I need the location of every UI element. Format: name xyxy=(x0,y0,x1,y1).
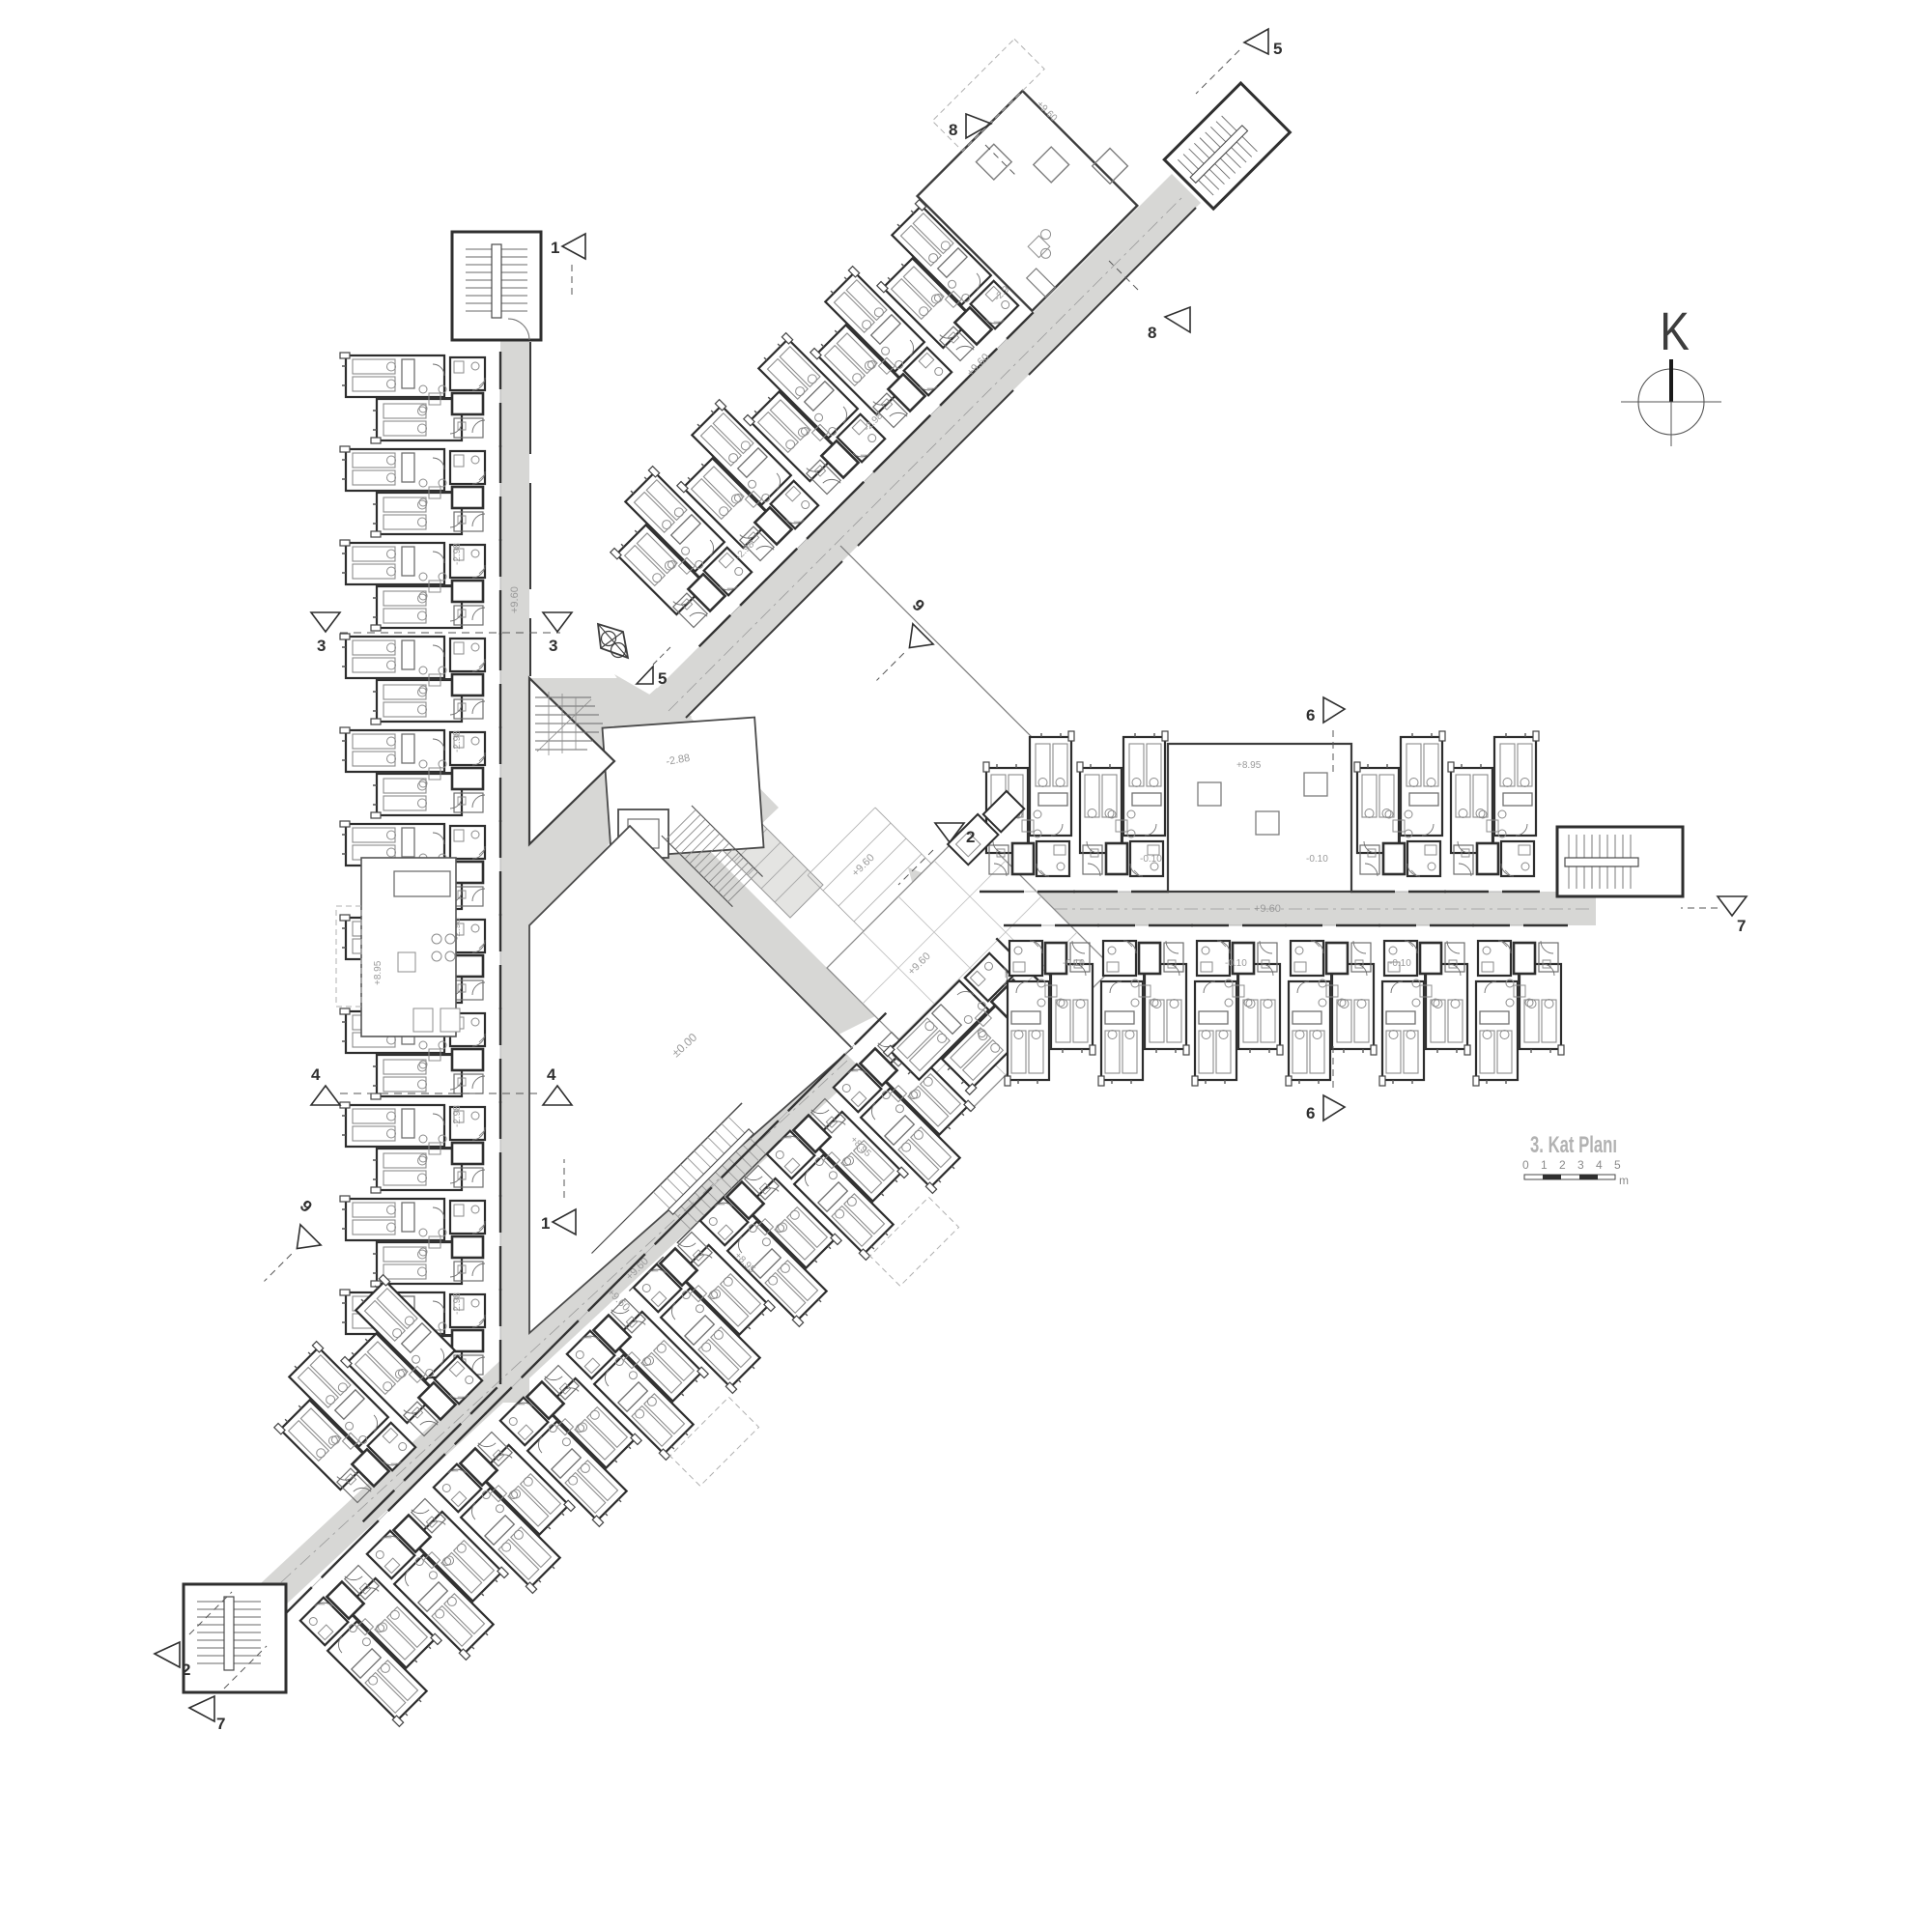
svg-text:2: 2 xyxy=(182,1660,190,1679)
svg-text:-2.98: -2.98 xyxy=(452,1105,463,1127)
svg-text:-0.10: -0.10 xyxy=(1306,854,1328,865)
svg-text:3: 3 xyxy=(549,637,557,655)
svg-text:-0.10: -0.10 xyxy=(1140,854,1162,865)
svg-text:1: 1 xyxy=(541,1214,550,1233)
svg-text:6: 6 xyxy=(1306,1104,1315,1122)
svg-text:1: 1 xyxy=(1541,1158,1548,1172)
svg-text:3. Kat Planı: 3. Kat Planı xyxy=(1530,1132,1617,1158)
svg-text:7: 7 xyxy=(1737,917,1746,935)
svg-text:+8.95: +8.95 xyxy=(373,960,384,985)
svg-text:3: 3 xyxy=(1577,1158,1584,1172)
svg-text:-2.98: -2.98 xyxy=(452,543,463,565)
svg-text:-0.10: -0.10 xyxy=(1063,958,1085,969)
svg-text:3: 3 xyxy=(317,637,326,655)
svg-text:-0.10: -0.10 xyxy=(1225,958,1247,969)
svg-text:+9.60: +9.60 xyxy=(509,586,521,613)
svg-text:+9.60: +9.60 xyxy=(1254,903,1281,915)
svg-text:1: 1 xyxy=(551,239,559,257)
svg-text:+8.95: +8.95 xyxy=(1236,760,1262,771)
svg-text:0: 0 xyxy=(1522,1158,1529,1172)
svg-text:8: 8 xyxy=(949,121,957,139)
svg-text:5: 5 xyxy=(1614,1158,1621,1172)
svg-text:m: m xyxy=(1619,1174,1629,1187)
svg-text:8: 8 xyxy=(1148,324,1156,342)
svg-text:-2.98: -2.98 xyxy=(452,730,463,752)
svg-text:6: 6 xyxy=(1306,706,1315,724)
svg-text:9: 9 xyxy=(297,1197,316,1216)
svg-text:+9.60: +9.60 xyxy=(850,852,877,879)
svg-text:-0.10: -0.10 xyxy=(1389,958,1411,969)
svg-text:4: 4 xyxy=(1596,1158,1603,1172)
svg-text:5: 5 xyxy=(1273,40,1282,58)
svg-text:2: 2 xyxy=(966,828,975,846)
svg-text:K: K xyxy=(1660,301,1690,361)
svg-text:4: 4 xyxy=(547,1065,556,1084)
svg-text:5: 5 xyxy=(658,669,667,688)
svg-text:4: 4 xyxy=(311,1065,321,1084)
svg-text:7: 7 xyxy=(216,1715,225,1733)
svg-text:2: 2 xyxy=(1559,1158,1566,1172)
svg-text:9: 9 xyxy=(909,596,928,615)
svg-text:-2.98: -2.98 xyxy=(452,1292,463,1315)
